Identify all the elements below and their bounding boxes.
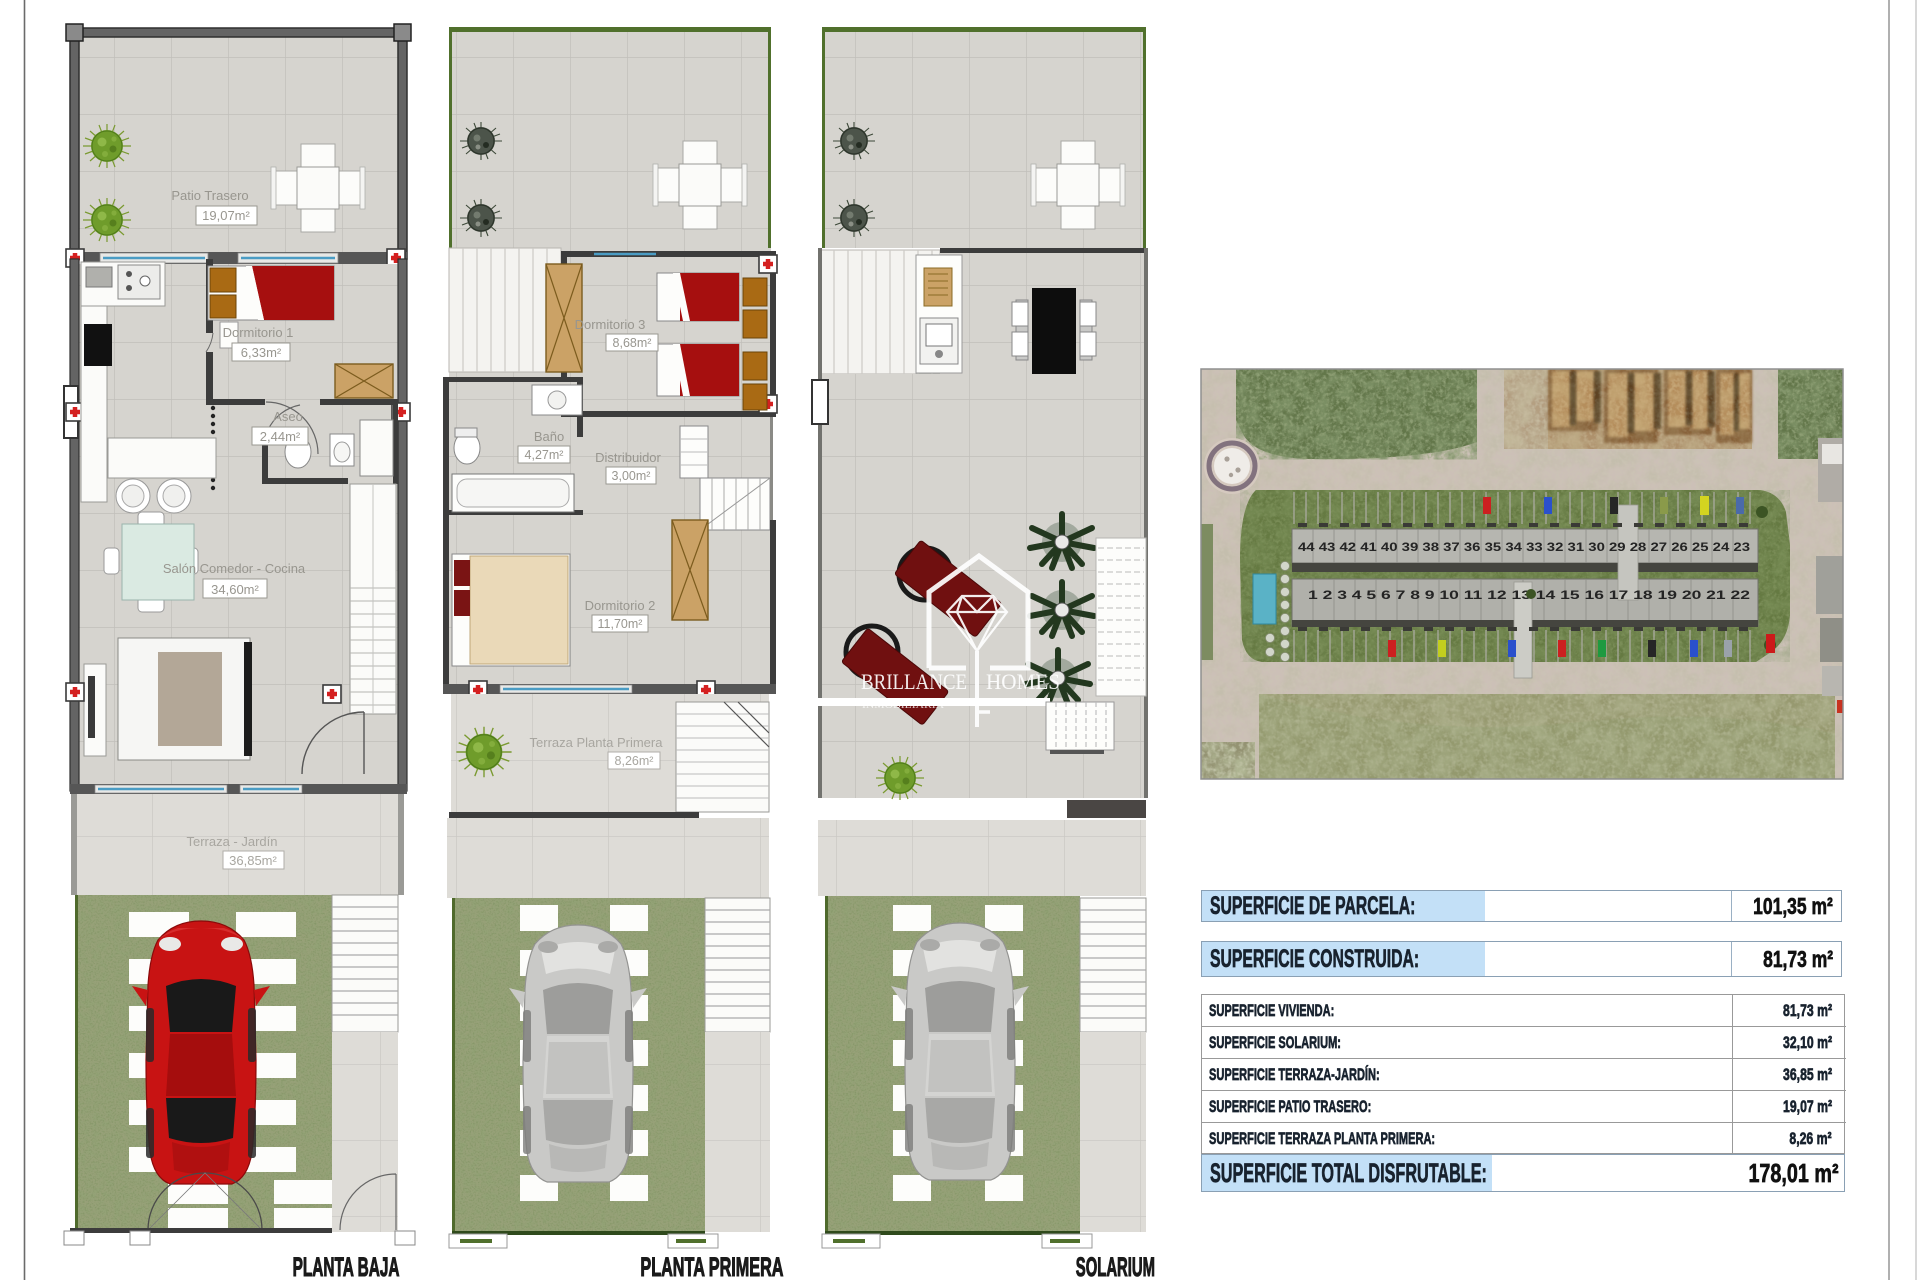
svg-text:HOMES: HOMES: [986, 669, 1060, 694]
svg-text:34,60m²: 34,60m²: [211, 582, 259, 597]
svg-text:Patio Trasero: Patio Trasero: [171, 188, 248, 203]
svg-text:Dormitorio 1: Dormitorio 1: [223, 325, 294, 340]
svg-text:11,70m²: 11,70m²: [598, 617, 643, 631]
svg-text:BRILLANCE: BRILLANCE: [861, 669, 967, 694]
svg-text:INMOBILIARIA: INMOBILIARIA: [862, 699, 944, 711]
svg-text:Terraza Planta Primera: Terraza Planta Primera: [530, 735, 664, 750]
svg-text:8,26m²: 8,26m²: [615, 754, 654, 768]
svg-text:6,33m²: 6,33m²: [241, 345, 282, 360]
svg-text:Dormitorio 2: Dormitorio 2: [585, 598, 656, 613]
svg-text:2,44m²: 2,44m²: [260, 429, 301, 444]
svg-text:Aseo: Aseo: [273, 409, 303, 424]
svg-text:Salón Comedor - Cocina: Salón Comedor - Cocina: [163, 561, 306, 576]
svg-text:44 43 42 41 40 39 38 37 36 35: 44 43 42 41 40 39 38 37 36 35 34 33 32 3…: [1298, 542, 1750, 554]
svg-text:36,85m²: 36,85m²: [229, 853, 277, 868]
svg-text:Baño: Baño: [534, 429, 564, 444]
svg-text:8,68m²: 8,68m²: [613, 336, 652, 350]
svg-text:Terraza - Jardín: Terraza - Jardín: [186, 834, 277, 849]
svg-text:19,07m²: 19,07m²: [202, 208, 250, 223]
svg-text:Dormitorio 3: Dormitorio 3: [575, 317, 646, 332]
svg-text:4,27m²: 4,27m²: [525, 448, 564, 462]
svg-text:3,00m²: 3,00m²: [612, 469, 651, 483]
svg-text:Distribuidor: Distribuidor: [595, 450, 661, 465]
